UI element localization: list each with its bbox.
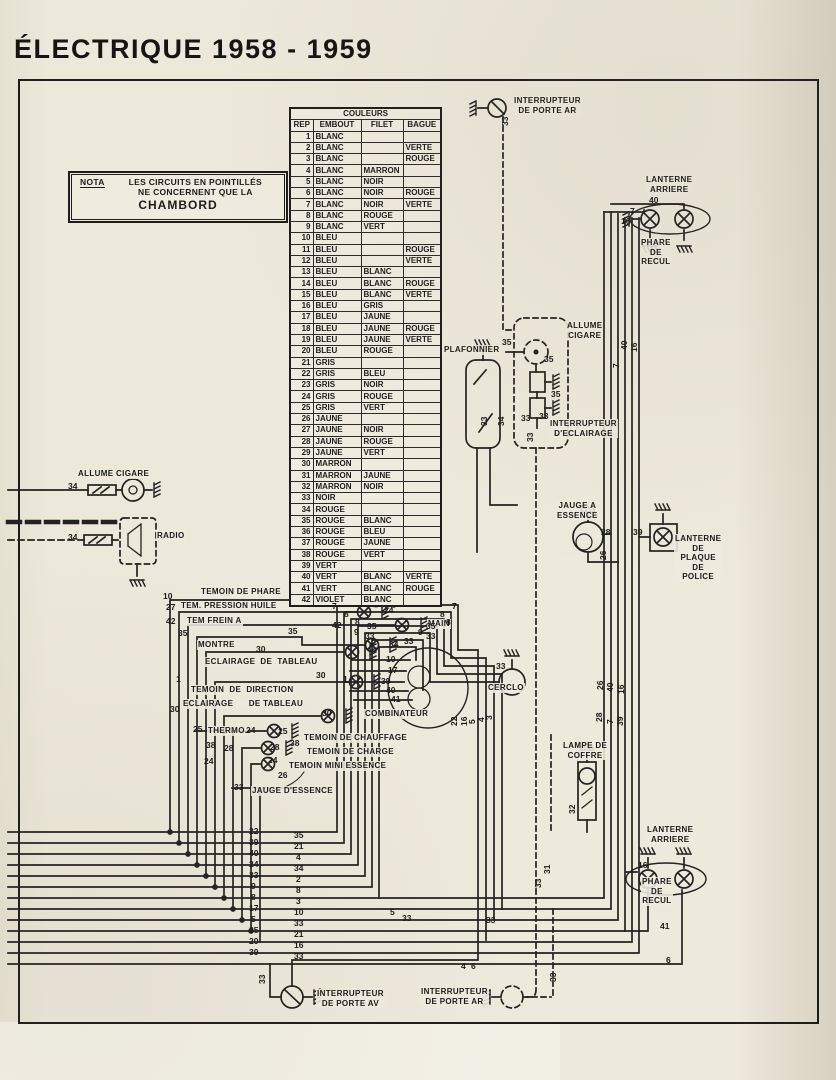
filet-cell xyxy=(361,154,403,165)
rep-cell: 6 xyxy=(290,188,313,199)
rep-cell: 15 xyxy=(290,289,313,300)
wire-number-9: 9 xyxy=(251,882,256,891)
rep-cell: 10 xyxy=(290,233,313,244)
filet-cell: JAUNE xyxy=(361,538,403,549)
couleurs-col-header: EMBOUT xyxy=(313,120,361,131)
bague-cell xyxy=(403,312,441,323)
nota-tag: NOTA xyxy=(80,177,105,188)
couleurs-row: 11BLEUROUGE xyxy=(290,244,441,255)
wire-number-33: 33 xyxy=(234,783,243,792)
bague-cell xyxy=(403,267,441,278)
wire-number-16: 16 xyxy=(630,343,639,352)
rep-cell: 8 xyxy=(290,210,313,221)
rep-cell: 9 xyxy=(290,221,313,232)
bague-cell xyxy=(403,346,441,357)
couleurs-row: 29JAUNEVERT xyxy=(290,447,441,458)
couleurs-table: COULEURS REPEMBOUTFILETBAGUE 1BLANC2BLAN… xyxy=(289,107,442,607)
embout-cell: JAUNE xyxy=(313,414,361,425)
filet-cell: BLANC xyxy=(361,289,403,300)
temoin-mini-essence-label: TEMOIN MINI ESSENCE xyxy=(288,761,387,771)
rep-cell: 37 xyxy=(290,538,313,549)
rep-cell: 38 xyxy=(290,549,313,560)
filet-cell xyxy=(361,560,403,571)
filet-cell: JAUNE xyxy=(361,470,403,481)
filet-cell: VERT xyxy=(361,549,403,560)
embout-cell: GRIS xyxy=(313,357,361,368)
rep-cell: 5 xyxy=(290,176,313,187)
wire-number-1: 1 xyxy=(176,675,181,684)
eclairage-de-tableau-1-label: ECLAIRAGE DE TABLEAU xyxy=(204,657,318,667)
bague-cell: ROUGE xyxy=(403,154,441,165)
couleurs-col-header: REP xyxy=(290,120,313,131)
embout-cell: BLEU xyxy=(313,267,361,278)
wire-number-16: 16 xyxy=(621,217,630,226)
wire-number-35: 35 xyxy=(551,390,560,399)
interrupteur-porte-av-label: INTERRUPTEUR DE PORTE AV xyxy=(316,989,385,1008)
wire-number-5: 5 xyxy=(390,908,395,917)
wire-number-40: 40 xyxy=(649,196,658,205)
wire-number-33: 33 xyxy=(486,916,495,925)
couleurs-row: 2BLANCVERTE xyxy=(290,142,441,153)
couleurs-row: 17BLEUJAUNE xyxy=(290,312,441,323)
wire-number-9: 9 xyxy=(418,628,423,637)
bague-cell xyxy=(403,233,441,244)
rep-cell: 24 xyxy=(290,391,313,402)
embout-cell: GRIS xyxy=(313,368,361,379)
phare-de-recul-top-label: PHARE DE RECUL xyxy=(640,238,672,267)
wire-number-25: 25 xyxy=(278,727,287,736)
couleurs-row: 21GRIS xyxy=(290,357,441,368)
bague-cell xyxy=(403,221,441,232)
embout-cell: VERT xyxy=(313,572,361,583)
rep-cell: 29 xyxy=(290,447,313,458)
rep-cell: 11 xyxy=(290,244,313,255)
couleurs-row: 37ROUGEJAUNE xyxy=(290,538,441,549)
rep-cell: 2 xyxy=(290,142,313,153)
filet-cell: NOIR xyxy=(361,380,403,391)
filet-cell: ROUGE xyxy=(361,436,403,447)
embout-cell: VIOLET xyxy=(313,594,361,606)
couleurs-row: 13BLEUBLANC xyxy=(290,267,441,278)
wire-number-33: 33 xyxy=(496,662,505,671)
couleurs-row: 5BLANCNOIR xyxy=(290,176,441,187)
nota-model: CHAMBORD xyxy=(70,198,286,212)
embout-cell: GRIS xyxy=(313,391,361,402)
bague-cell xyxy=(403,402,441,413)
bague-cell xyxy=(403,515,441,526)
jauge-a-essence-label: JAUGE A ESSENCE xyxy=(556,501,599,520)
wire-number-3: 3 xyxy=(296,897,301,906)
filet-cell: JAUNE xyxy=(361,334,403,345)
couleurs-row: 1BLANC xyxy=(290,131,441,142)
rep-cell: 1 xyxy=(290,131,313,142)
wire-number-6: 6 xyxy=(471,962,476,971)
embout-cell: GRIS xyxy=(313,380,361,391)
montre-label: MONTRE xyxy=(197,640,236,650)
filet-cell xyxy=(361,414,403,425)
couleurs-row: 12BLEUVERTE xyxy=(290,255,441,266)
couleurs-row: 26JAUNE xyxy=(290,414,441,425)
bague-cell xyxy=(403,165,441,176)
embout-cell: BLEU xyxy=(313,255,361,266)
filet-cell xyxy=(361,459,403,470)
rep-cell: 27 xyxy=(290,425,313,436)
wire-number-25: 25 xyxy=(193,725,202,734)
filet-cell: NOIR xyxy=(361,425,403,436)
phare-de-recul-bottom-label: PHARE DE RECUL xyxy=(641,877,673,906)
embout-cell: VERT xyxy=(313,583,361,594)
combinateur-label: COMBINATEUR xyxy=(364,709,429,719)
rep-cell: 4 xyxy=(290,165,313,176)
bague-cell xyxy=(403,414,441,425)
rep-cell: 17 xyxy=(290,312,313,323)
wire-number-35: 35 xyxy=(544,355,553,364)
wire-number-33: 33 xyxy=(249,871,258,880)
bague-cell xyxy=(403,176,441,187)
wire-number-8: 8 xyxy=(355,618,360,627)
bague-cell xyxy=(403,560,441,571)
wire-number-9: 9 xyxy=(354,628,359,637)
rep-cell: 20 xyxy=(290,346,313,357)
wire-number-16: 16 xyxy=(638,861,647,870)
embout-cell: JAUNE xyxy=(313,425,361,436)
rep-cell: 7 xyxy=(290,199,313,210)
wire-number-33: 33 xyxy=(294,919,303,928)
wire-number-8: 8 xyxy=(344,610,349,619)
couleurs-row: 33NOIR xyxy=(290,493,441,504)
wire-number-35: 35 xyxy=(502,338,511,347)
wire-number-24: 24 xyxy=(384,606,393,615)
thermo-label: THERMO. xyxy=(207,726,248,736)
couleurs-row: 8BLANCROUGE xyxy=(290,210,441,221)
couleurs-col-header: FILET xyxy=(361,120,403,131)
cerclo-label: CERCLO xyxy=(487,683,525,693)
filet-cell xyxy=(361,233,403,244)
couleurs-row: 7BLANCNOIRVERTE xyxy=(290,199,441,210)
embout-cell: BLANC xyxy=(313,210,361,221)
temoin-de-phare-label: TEMOIN DE PHARE xyxy=(200,587,282,597)
tem-pression-huile-label: TEM. PRESSION HUILE xyxy=(180,601,278,611)
filet-cell xyxy=(361,493,403,504)
interrupteur-porte-ar-top-label: INTERRUPTEUR DE PORTE AR xyxy=(513,96,582,115)
embout-cell: BLANC xyxy=(313,188,361,199)
bague-cell: VERTE xyxy=(403,572,441,583)
filet-cell xyxy=(361,504,403,515)
couleurs-row: 36ROUGEBLEU xyxy=(290,526,441,537)
wire-number-8: 8 xyxy=(446,618,451,627)
wire-number-39: 39 xyxy=(616,717,625,726)
wire-number-3: 3 xyxy=(485,715,494,720)
temoin-de-direction-label: TEMOIN DE DIRECTION xyxy=(190,685,294,695)
embout-cell: BLANC xyxy=(313,154,361,165)
couleurs-row: 14BLEUBLANCROUGE xyxy=(290,278,441,289)
rep-cell: 21 xyxy=(290,357,313,368)
couleurs-row: 40VERTBLANCVERTE xyxy=(290,572,441,583)
bague-cell xyxy=(403,436,441,447)
wire-number-28: 28 xyxy=(224,744,233,753)
wire-number-34: 34 xyxy=(68,482,77,491)
couleurs-row: 23GRISNOIR xyxy=(290,380,441,391)
wire-number-40: 40 xyxy=(620,341,629,350)
bague-cell xyxy=(403,447,441,458)
temoin-de-chauffage-label: TEMOIN DE CHAUFFAGE xyxy=(303,733,408,743)
rep-cell: 3 xyxy=(290,154,313,165)
rep-cell: 39 xyxy=(290,560,313,571)
wire-number-35: 35 xyxy=(367,622,376,631)
wire-number-33: 33 xyxy=(402,914,411,923)
wire-number-8: 8 xyxy=(296,886,301,895)
wire-number-8: 8 xyxy=(251,893,256,902)
filet-cell: BLANC xyxy=(361,572,403,583)
rep-cell: 23 xyxy=(290,380,313,391)
filet-cell xyxy=(361,255,403,266)
filet-cell: JAUNE xyxy=(361,312,403,323)
filet-cell: NOIR xyxy=(361,188,403,199)
bague-cell xyxy=(403,459,441,470)
wire-number-10: 10 xyxy=(294,908,303,917)
wire-number-26: 26 xyxy=(599,551,608,560)
lanterne-arriere-bottom-label: LANTERNE ARRIERE xyxy=(646,825,694,844)
couleurs-row: 32MARRONNOIR xyxy=(290,481,441,492)
wire-number-32: 32 xyxy=(568,805,577,814)
allume-cigare-right-label: ALLUME CIGARE xyxy=(566,321,603,340)
rep-cell: 42 xyxy=(290,594,313,606)
bague-cell xyxy=(403,549,441,560)
wire-number-35: 35 xyxy=(426,622,435,631)
filet-cell: VERT xyxy=(361,447,403,458)
bague-cell: VERTE xyxy=(403,142,441,153)
wire-number-41: 41 xyxy=(391,695,400,704)
filet-cell: JAUNE xyxy=(361,323,403,334)
wire-number-24: 24 xyxy=(204,757,213,766)
wire-number-34: 34 xyxy=(68,533,77,542)
couleurs-row: 15BLEUBLANCVERTE xyxy=(290,289,441,300)
couleurs-row: 9BLANCVERT xyxy=(290,221,441,232)
filet-cell xyxy=(361,357,403,368)
rep-cell: 40 xyxy=(290,572,313,583)
bague-cell: VERTE xyxy=(403,289,441,300)
filet-cell: BLEU xyxy=(361,368,403,379)
bague-cell: ROUGE xyxy=(403,583,441,594)
bague-cell xyxy=(403,357,441,368)
filet-cell xyxy=(361,131,403,142)
couleurs-row: 27JAUNENOIR xyxy=(290,425,441,436)
wire-number-21: 21 xyxy=(294,930,303,939)
embout-cell: JAUNE xyxy=(313,436,361,447)
couleurs-row: 25GRISVERT xyxy=(290,402,441,413)
embout-cell: BLEU xyxy=(313,278,361,289)
wire-number-28: 28 xyxy=(270,743,279,752)
wire-number-33: 33 xyxy=(501,117,510,126)
embout-cell: BLEU xyxy=(313,346,361,357)
bague-cell: ROUGE xyxy=(403,244,441,255)
wire-number-33: 33 xyxy=(549,973,558,982)
couleurs-row: 19BLEUJAUNEVERTE xyxy=(290,334,441,345)
bague-cell xyxy=(403,538,441,549)
bague-cell xyxy=(403,425,441,436)
wire-number-8: 8 xyxy=(440,610,445,619)
bague-cell xyxy=(403,470,441,481)
wire-number-5: 5 xyxy=(251,915,256,924)
wire-number-35: 35 xyxy=(288,627,297,636)
wire-number-22: 22 xyxy=(249,827,258,836)
nota-box: NOTA LES CIRCUITS EN POINTILLÉS NE CONCE… xyxy=(68,171,288,223)
couleurs-row: 3BLANCROUGE xyxy=(290,154,441,165)
filet-cell: BLANC xyxy=(361,515,403,526)
embout-cell: BLEU xyxy=(313,244,361,255)
interrupteur-eclairage-label: INTERRUPTEUR D'ECLAIRAGE xyxy=(549,419,618,438)
rep-cell: 25 xyxy=(290,402,313,413)
embout-cell: BLANC xyxy=(313,131,361,142)
wire-number-17: 17 xyxy=(388,666,397,675)
embout-cell: BLEU xyxy=(313,301,361,312)
wire-number-35: 35 xyxy=(249,926,258,935)
rep-cell: 36 xyxy=(290,526,313,537)
nota-line1: LES CIRCUITS EN POINTILLÉS xyxy=(129,177,262,187)
embout-cell: ROUGE xyxy=(313,515,361,526)
wire-number-10: 10 xyxy=(163,592,172,601)
filet-cell xyxy=(361,142,403,153)
couleurs-row: 18BLEUJAUNEROUGE xyxy=(290,323,441,334)
filet-cell: BLANC xyxy=(361,594,403,606)
rep-cell: 30 xyxy=(290,459,313,470)
wire-number-42: 42 xyxy=(166,617,175,626)
wire-number-26: 26 xyxy=(596,681,605,690)
bague-cell xyxy=(403,301,441,312)
wire-number-17: 17 xyxy=(249,904,258,913)
couleurs-row: 41VERTBLANCROUGE xyxy=(290,583,441,594)
wire-number-33: 33 xyxy=(521,414,530,423)
wire-number-33: 33 xyxy=(404,637,413,646)
wire-number-33: 33 xyxy=(294,952,303,961)
filet-cell: ROUGE xyxy=(361,391,403,402)
lanterne-arriere-top-label: LANTERNE ARRIERE xyxy=(645,175,693,194)
couleurs-row: 6BLANCNOIRROUGE xyxy=(290,188,441,199)
scanned-wiring-diagram-page: ÉLECTRIQUE 1958 - 1959 xyxy=(0,0,836,1080)
radio-label: RADIO xyxy=(156,531,186,541)
wire-number-30: 30 xyxy=(170,705,179,714)
nota-line2: NE CONCERNENT QUE LA xyxy=(70,187,286,197)
filet-cell: NOIR xyxy=(361,481,403,492)
embout-cell: MARRON xyxy=(313,459,361,470)
bague-cell: VERTE xyxy=(403,334,441,345)
wire-number-1: 1 xyxy=(343,675,348,684)
embout-cell: ROUGE xyxy=(313,549,361,560)
couleurs-row: 22GRISBLEU xyxy=(290,368,441,379)
wire-number-40: 40 xyxy=(606,683,615,692)
embout-cell: MARRON xyxy=(313,481,361,492)
couleurs-row: 34ROUGE xyxy=(290,504,441,515)
embout-cell: BLEU xyxy=(313,289,361,300)
wire-number-34: 34 xyxy=(294,864,303,873)
bague-cell xyxy=(403,391,441,402)
filet-cell: BLANC xyxy=(361,583,403,594)
embout-cell: GRIS xyxy=(313,402,361,413)
bague-cell xyxy=(403,131,441,142)
wire-number-28: 28 xyxy=(595,713,604,722)
rep-cell: 18 xyxy=(290,323,313,334)
wire-number-34: 34 xyxy=(497,417,506,426)
couleurs-row: 39VERT xyxy=(290,560,441,571)
rep-cell: 31 xyxy=(290,470,313,481)
wire-number-7: 7 xyxy=(630,207,635,216)
wire-number-34: 34 xyxy=(389,640,398,649)
filet-cell xyxy=(361,244,403,255)
filet-cell: BLEU xyxy=(361,526,403,537)
wire-number-16: 16 xyxy=(294,941,303,950)
couleurs-row: 35ROUGEBLANC xyxy=(290,515,441,526)
embout-cell: ROUGE xyxy=(313,538,361,549)
wire-number-7: 7 xyxy=(332,602,337,611)
allume-cigare-left-label: ALLUME CIGARE xyxy=(77,469,150,479)
wire-number-33: 33 xyxy=(534,879,543,888)
wire-number-38: 38 xyxy=(206,741,215,750)
wire-number-33: 33 xyxy=(426,632,435,641)
wire-number-30: 30 xyxy=(316,671,325,680)
filet-cell: MARRON xyxy=(361,165,403,176)
wire-number-35: 35 xyxy=(294,831,303,840)
wire-number-6: 6 xyxy=(666,956,671,965)
wire-number-38: 38 xyxy=(290,739,299,748)
bague-cell xyxy=(403,210,441,221)
wire-number-24: 24 xyxy=(268,756,277,765)
embout-cell: BLANC xyxy=(313,221,361,232)
couleurs-row: 31MARRONJAUNE xyxy=(290,470,441,481)
wire-number-35: 35 xyxy=(178,629,187,638)
rep-cell: 14 xyxy=(290,278,313,289)
rep-cell: 41 xyxy=(290,583,313,594)
embout-cell: BLANC xyxy=(313,165,361,176)
embout-cell: ROUGE xyxy=(313,526,361,537)
couleurs-row: 24GRISROUGE xyxy=(290,391,441,402)
bague-cell: VERTE xyxy=(403,255,441,266)
rep-cell: 12 xyxy=(290,255,313,266)
filet-cell: BLANC xyxy=(361,267,403,278)
filet-cell: BLANC xyxy=(361,278,403,289)
filet-cell: VERT xyxy=(361,402,403,413)
wire-number-33: 33 xyxy=(365,632,374,641)
rep-cell: 35 xyxy=(290,515,313,526)
bague-cell xyxy=(403,481,441,492)
bague-cell xyxy=(403,368,441,379)
embout-cell: VERT xyxy=(313,560,361,571)
eclairage-de-tableau-2-label: ECLAIRAGE DE TABLEAU xyxy=(182,699,304,709)
embout-cell: BLANC xyxy=(313,199,361,210)
filet-cell: ROUGE xyxy=(361,346,403,357)
wire-number-27: 27 xyxy=(166,603,175,612)
wire-number-22: 22 xyxy=(450,717,459,726)
wire-number-4: 4 xyxy=(461,962,466,971)
wire-number-28: 28 xyxy=(601,528,610,537)
embout-cell: BLEU xyxy=(313,334,361,345)
embout-cell: BLANC xyxy=(313,142,361,153)
wire-number-4: 4 xyxy=(296,853,301,862)
bague-cell: ROUGE xyxy=(403,323,441,334)
filet-cell: GRIS xyxy=(361,301,403,312)
temoin-de-charge-label: TEMOIN DE CHARGE xyxy=(306,747,395,757)
embout-cell: BLEU xyxy=(313,323,361,334)
couleurs-row: 16BLEUGRIS xyxy=(290,301,441,312)
jauge-d-essence-label: JAUGE D'ESSENCE xyxy=(251,786,334,796)
wire-number-16: 16 xyxy=(617,685,626,694)
filet-cell: ROUGE xyxy=(361,210,403,221)
tem-frein-a-label: TEM FREIN A xyxy=(186,616,243,626)
filet-cell: NOIR xyxy=(361,199,403,210)
bague-cell: ROUGE xyxy=(403,278,441,289)
couleurs-row: 10BLEU xyxy=(290,233,441,244)
bague-cell xyxy=(403,493,441,504)
wire-number-21: 21 xyxy=(294,842,303,851)
